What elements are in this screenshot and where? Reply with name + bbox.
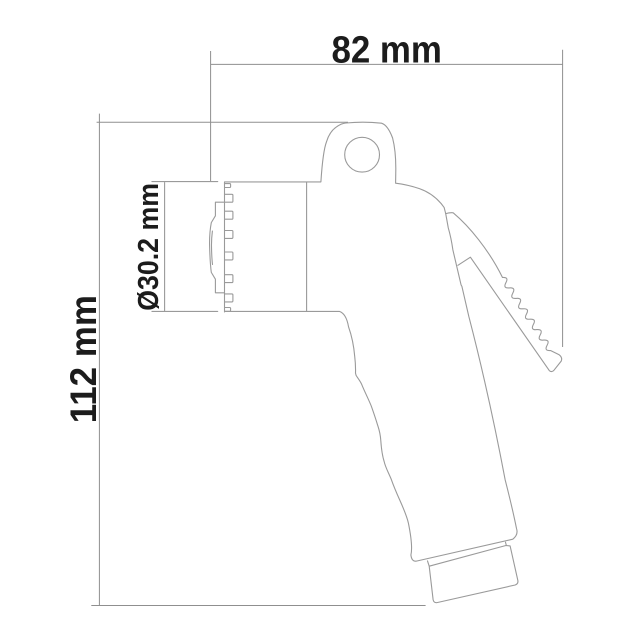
svg-text:Ø30.2 mm: Ø30.2 mm [133, 183, 165, 311]
svg-text:112 mm: 112 mm [62, 295, 104, 423]
svg-text:82 mm: 82 mm [331, 29, 442, 71]
